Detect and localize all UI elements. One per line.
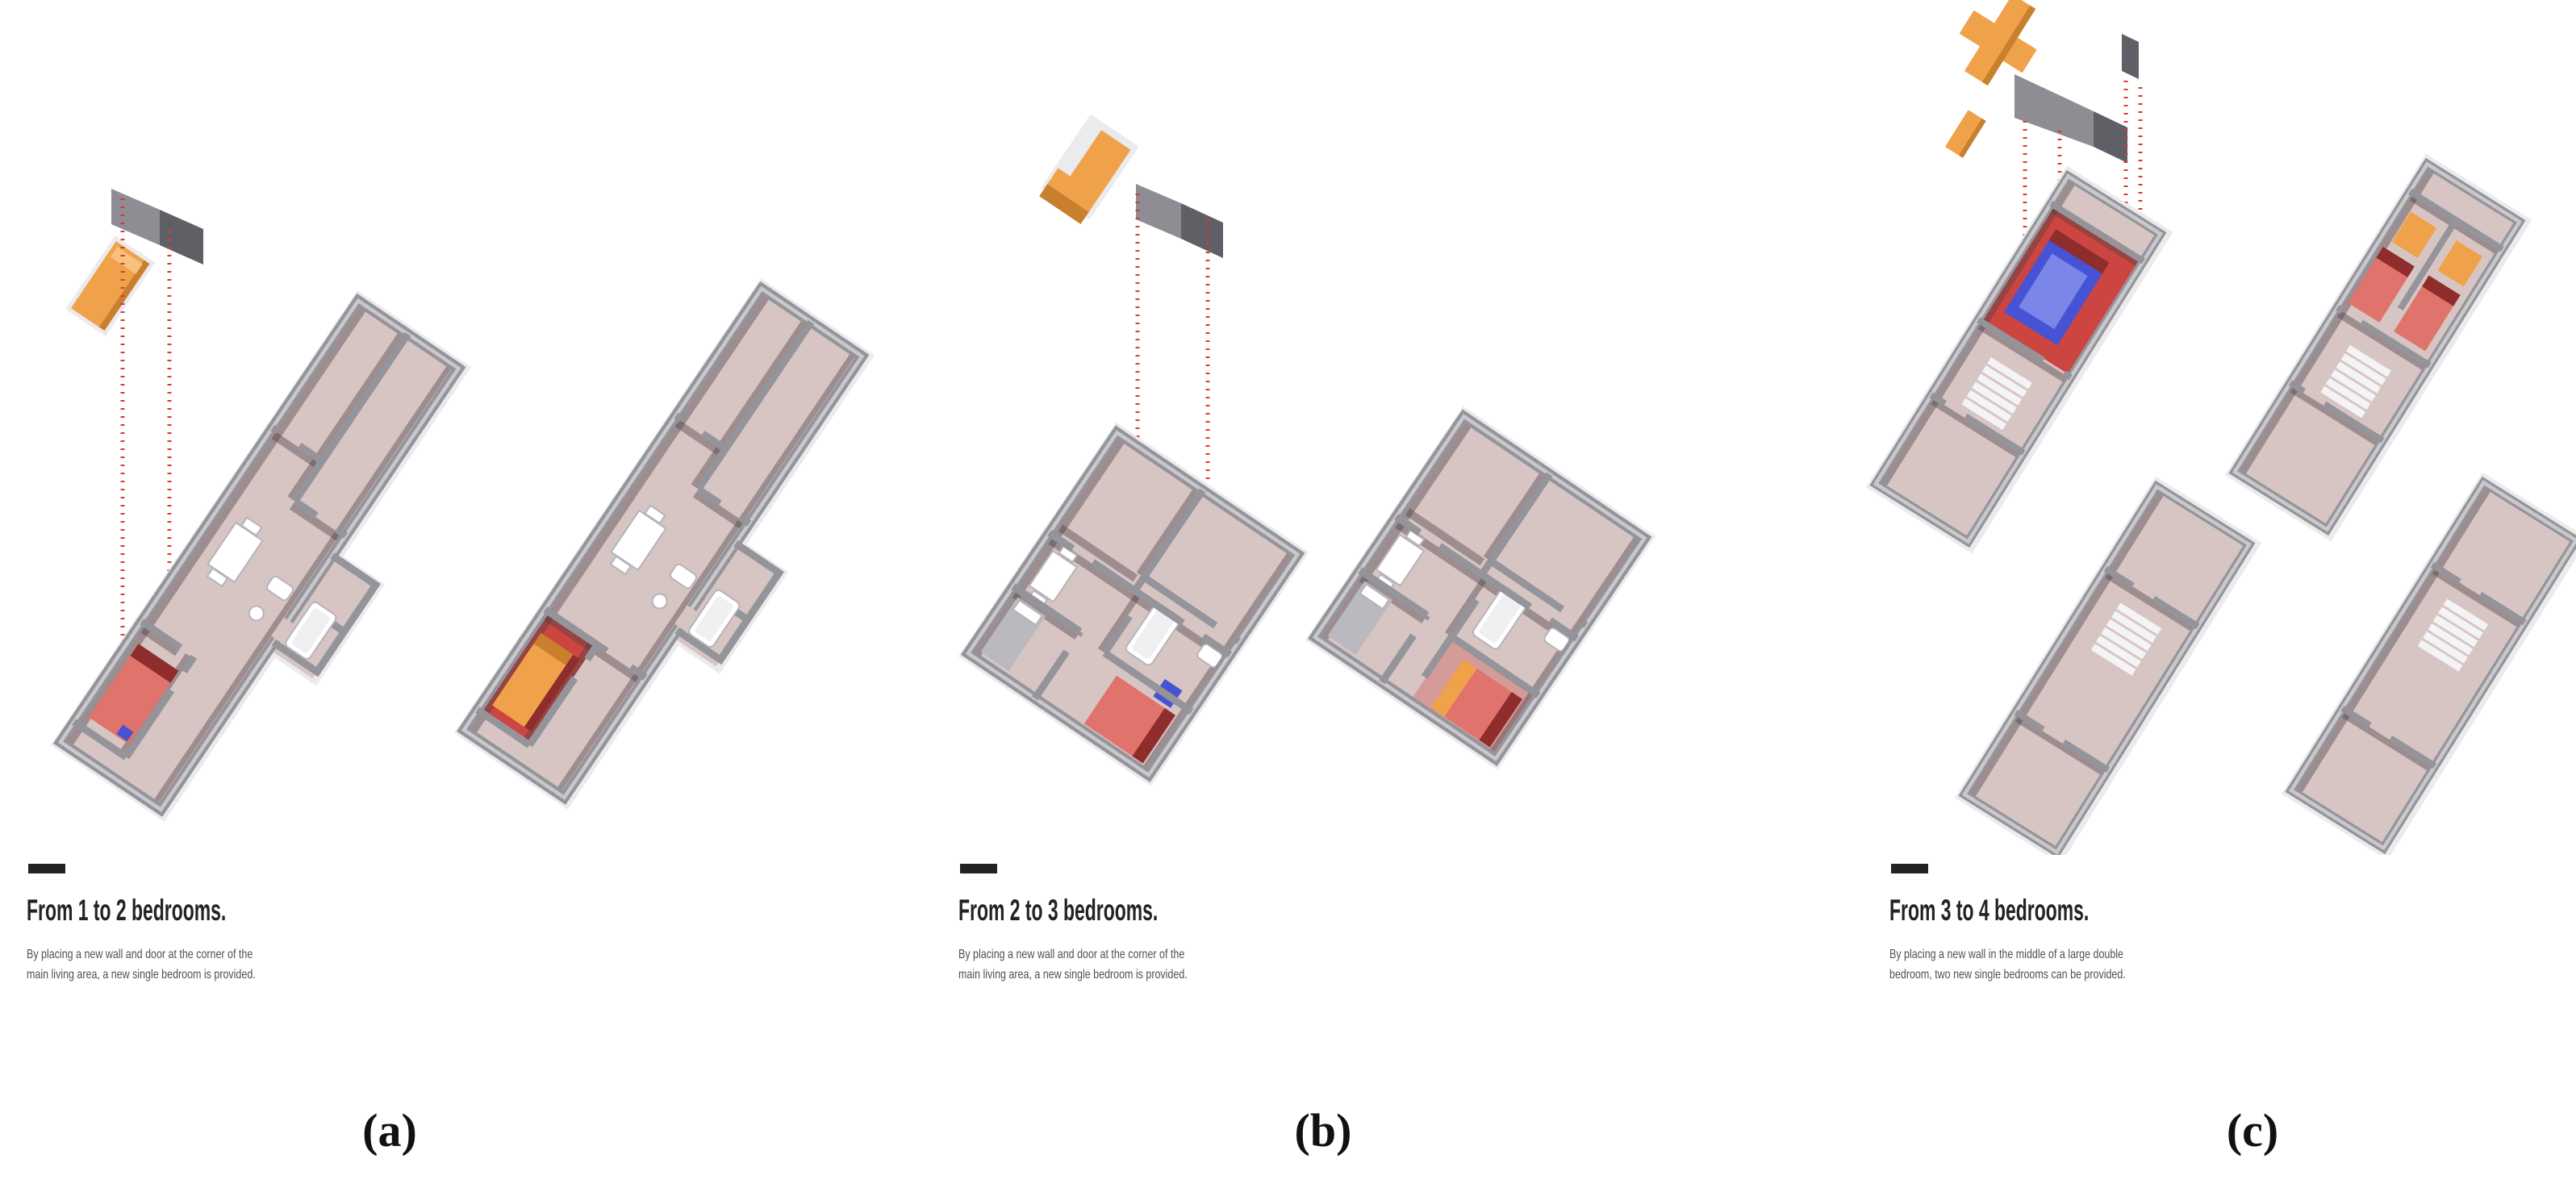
new-wall-panel: [1136, 184, 1223, 258]
figure-panel-c: From 3 to 4 bedrooms. By placing a new w…: [1839, 0, 2576, 1188]
before-plan-ground-floor: [1955, 477, 2262, 855]
panel-letter-label-a: (a): [309, 1105, 470, 1157]
caption-a: From 1 to 2 bedrooms. By placing a new w…: [27, 861, 349, 985]
axonometric-illustration-b: [928, 0, 1775, 855]
axonometric-illustration-c: [1843, 0, 2576, 855]
after-plan: [454, 278, 904, 837]
figure-panel-b: From 2 to 3 bedrooms. By placing a new w…: [904, 0, 1839, 1188]
caption-subtitle-line1: By placing a new wall and door at the co…: [958, 944, 1209, 965]
axonometric-illustration-a: [16, 0, 904, 855]
orange-desk: [1944, 0, 2055, 98]
panel-letter-label-b: (b): [1242, 1105, 1404, 1157]
caption-subtitle: By placing a new wall and door at the co…: [27, 944, 278, 985]
caption-subtitle: By placing a new wall in the middle of a…: [1889, 944, 2140, 985]
caption-c: From 3 to 4 bedrooms. By placing a new w…: [1889, 861, 2211, 985]
figure-panel-a: From 1 to 2 bedrooms. By placing a new w…: [0, 0, 904, 1188]
caption-rule: [1891, 864, 1928, 873]
caption-subtitle-line1: By placing a new wall in the middle of a…: [1889, 944, 2140, 965]
caption-subtitle-line2: main living area, a new single bedroom i…: [958, 965, 1209, 985]
caption-title: From 1 to 2 bedrooms.: [27, 894, 226, 927]
after-plan: [1305, 406, 1655, 770]
before-plan: [958, 423, 1309, 786]
caption-title: From 2 to 3 bedrooms.: [958, 894, 1158, 927]
before-plan: [51, 290, 513, 849]
figure-page: From 1 to 2 bedrooms. By placing a new w…: [0, 0, 2576, 1188]
panel-letter-label-c: (c): [2172, 1105, 2333, 1157]
caption-rule: [28, 864, 65, 873]
caption-subtitle: By placing a new wall and door at the co…: [958, 944, 1209, 985]
caption-subtitle-line2: bedroom, two new single bedrooms can be …: [1889, 965, 2140, 985]
caption-subtitle-line2: main living area, a new single bedroom i…: [27, 965, 278, 985]
orange-sofa: [1037, 114, 1139, 227]
caption-b: From 2 to 3 bedrooms. By placing a new w…: [958, 861, 1280, 985]
caption-title: From 3 to 4 bedrooms.: [1889, 894, 2089, 927]
before-plan-first-floor: [1866, 166, 2173, 554]
caption-subtitle-line1: By placing a new wall and door at the co…: [27, 944, 278, 965]
orange-bed: [65, 236, 155, 336]
orange-chair: [1945, 110, 1986, 158]
caption-rule: [960, 864, 997, 873]
